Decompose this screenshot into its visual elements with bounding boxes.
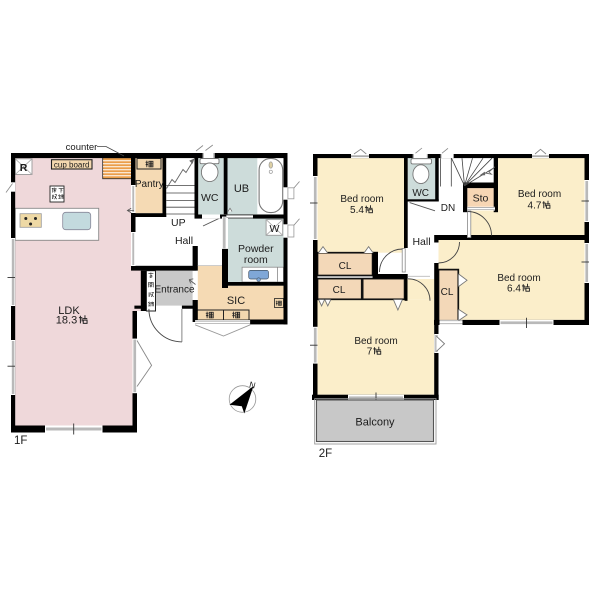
svg-text:Hall: Hall <box>175 235 193 247</box>
svg-text:2F: 2F <box>319 448 332 460</box>
svg-text:Bed room: Bed room <box>340 194 383 205</box>
svg-text:R: R <box>20 162 28 174</box>
svg-text:SIC: SIC <box>227 295 245 307</box>
svg-text:UP: UP <box>171 217 186 229</box>
svg-text:W: W <box>269 223 279 235</box>
svg-text:CL: CL <box>333 285 346 296</box>
svg-text:7: 7 <box>367 346 373 357</box>
svg-text:Balcony: Balcony <box>355 416 395 428</box>
svg-text:Bed room: Bed room <box>354 336 397 347</box>
svg-text:18.3: 18.3 <box>56 315 77 327</box>
svg-text:CL: CL <box>339 261 352 272</box>
svg-text:counter: counter <box>66 142 98 153</box>
svg-text:WC: WC <box>201 192 219 204</box>
svg-text:cup board: cup board <box>54 160 90 169</box>
svg-text:CL: CL <box>441 287 454 298</box>
svg-text:5.4: 5.4 <box>350 205 364 216</box>
svg-text:Bed room: Bed room <box>497 273 540 284</box>
svg-text:Pantry: Pantry <box>135 179 164 190</box>
svg-text:Hall: Hall <box>412 236 430 248</box>
svg-text:Bed room: Bed room <box>518 189 561 200</box>
svg-text:Entrance: Entrance <box>154 285 194 296</box>
svg-text:room: room <box>244 254 268 266</box>
svg-text:4.7: 4.7 <box>528 200 542 211</box>
svg-text:Sto: Sto <box>473 192 489 204</box>
svg-text:DN: DN <box>441 203 455 214</box>
svg-text:WC: WC <box>412 188 429 199</box>
svg-text:UB: UB <box>234 183 249 195</box>
svg-text:6.4: 6.4 <box>507 283 521 294</box>
svg-text:1F: 1F <box>14 435 27 447</box>
